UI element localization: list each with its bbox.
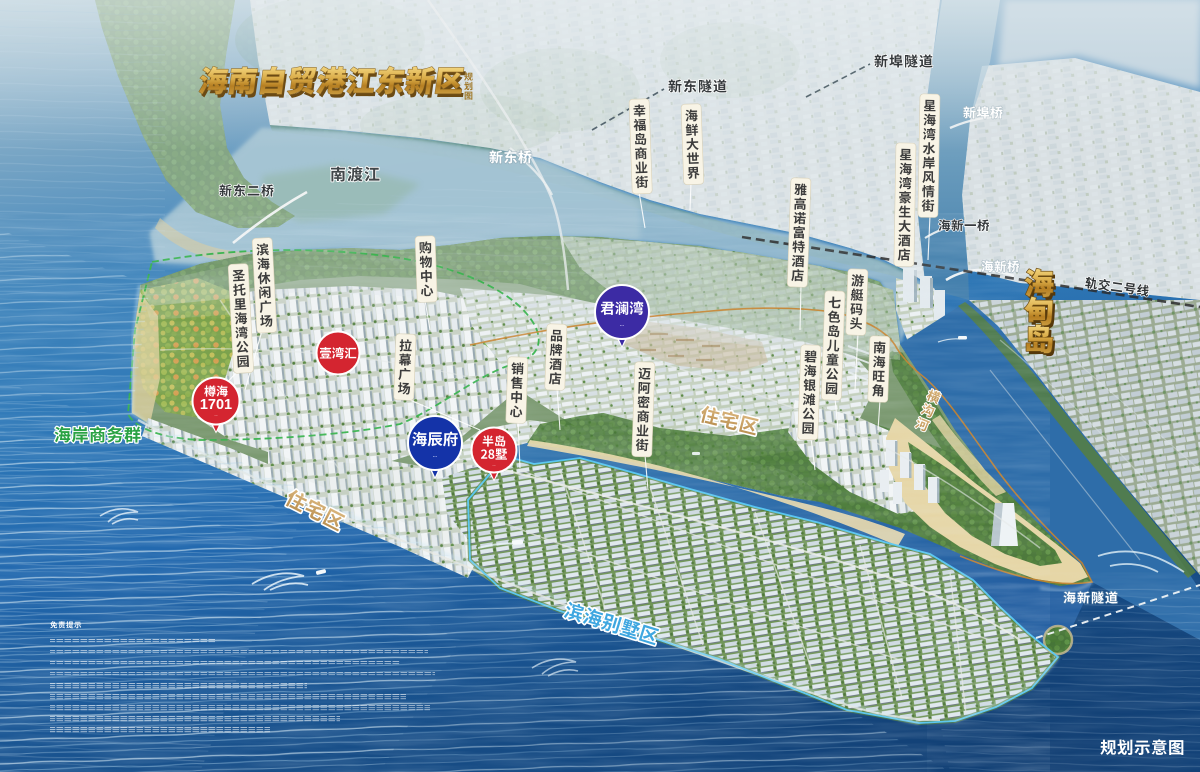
svg-text:...: ...: [214, 411, 217, 416]
svg-text:...: ...: [492, 461, 495, 466]
svg-text:...: ...: [620, 322, 625, 328]
svg-text:...: ...: [433, 453, 438, 459]
